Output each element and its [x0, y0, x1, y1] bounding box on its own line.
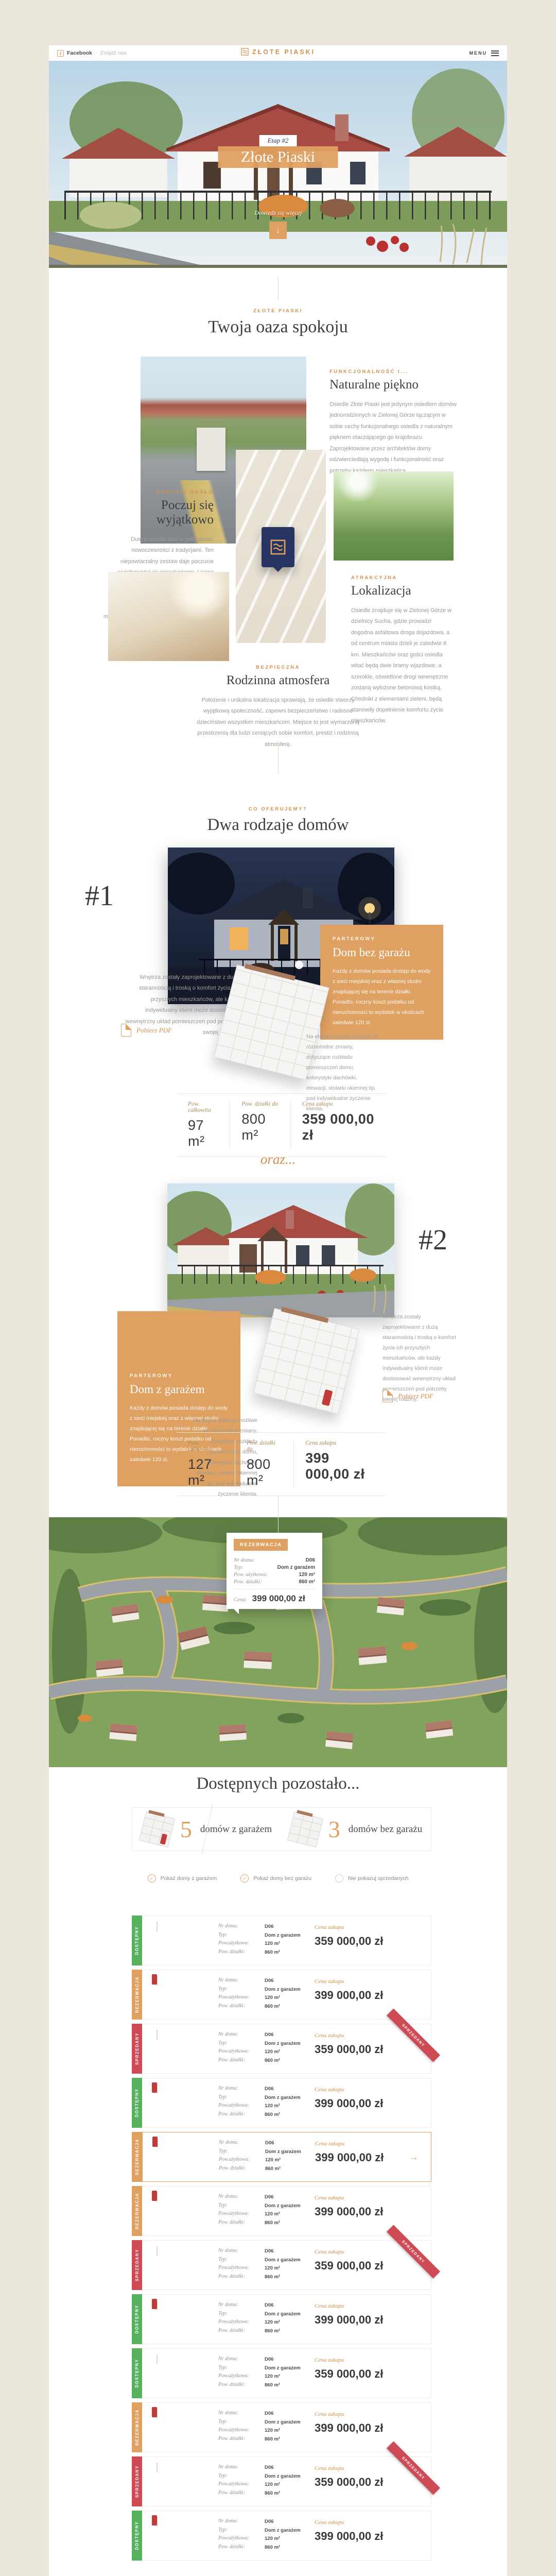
status-bar: REZERWACJA: [132, 2132, 142, 2182]
facebook-label: Facebook: [67, 50, 92, 56]
listing-row[interactable]: DOSTĘPNY Nr domu:D06 Typ:Dom z garażem P…: [132, 2511, 431, 2561]
stat-value: 127 m²: [188, 1456, 223, 1488]
hero-scroll-button[interactable]: ↓: [269, 222, 287, 239]
tooltip-price-label: Cena:: [234, 1597, 247, 1603]
intro-eyebrow: ZŁOTE PIASKI: [49, 308, 507, 314]
house2-day-photo: [167, 1183, 394, 1317]
logo[interactable]: ZŁOTE PIASKI: [241, 48, 315, 56]
feature-title: Rodzinna atmosfera: [196, 673, 360, 688]
feature-eyebrow: ATRAKCYJNA: [351, 575, 454, 581]
listing-row[interactable]: REZERWACJA Nr domu:D06 Typ:Dom z garażem…: [132, 1970, 431, 2020]
stat-value: 97 m²: [188, 1117, 218, 1149]
floorplan-thumb: [157, 2354, 158, 2364]
status-bar: DOSTĘPNY: [132, 1916, 142, 1965]
house-card-eyebrow: PARTEROWY: [333, 936, 431, 942]
pdf-icon: [121, 1024, 131, 1037]
availability-counters: 5 domów z garażem 3 domów bez garażu: [132, 1807, 431, 1851]
floorplan-thumb: [157, 2084, 158, 2094]
floorplan-icon: [287, 1811, 323, 1847]
divider-line: [278, 277, 279, 300]
counter-garage: 5 domów z garażem: [132, 1808, 282, 1851]
row-fields: Nr domu:D06 Typ:Dom z garażem Pow.użytko…: [218, 2194, 301, 2227]
row-fields: Nr domu:D06 Typ:Dom z garażem Pow.użytko…: [218, 2410, 301, 2444]
tooltip-price: 399 000,00 zł: [252, 1594, 305, 1604]
price-value: 399 000,00 zł: [315, 2421, 383, 2435]
houses-listing: DOSTĘPNY Nr domu:D06 Typ:Dom z garażem P…: [49, 1916, 507, 2568]
stat-label: Pow. działki do: [247, 1440, 282, 1452]
listing-row[interactable]: REZERWACJA Nr domu:D06 Typ:Dom z garażem…: [132, 2186, 431, 2236]
listing-row[interactable]: SPRZEDANY Nr domu:D06 Typ:Dom z garażem …: [132, 2240, 431, 2290]
price-value: 359 000,00 zł: [315, 1935, 383, 1948]
price-value: 399 000,00 zł: [315, 2530, 383, 2543]
floorplan-thumb: [157, 1922, 158, 1931]
tooltip-value: D06: [306, 1557, 315, 1563]
price-label: Cena zakupu: [315, 2519, 383, 2526]
map-marker[interactable]: [262, 527, 294, 567]
availability-section: Dostępnych pozostało... 5 domów z garaże…: [49, 1767, 507, 1916]
tooltip-value: 120 m²: [299, 1572, 315, 1578]
status-bar: SPRZEDANY: [132, 2456, 142, 2506]
pdf-label: Pobierz PDF: [136, 1026, 172, 1035]
feature-title: Poczuj się wyjątkowo: [103, 498, 214, 527]
price-value: 399 000,00 zł: [315, 2205, 383, 2218]
floorplan-thumb: [157, 2246, 158, 2256]
stat-label: Pow. całkowita: [188, 1101, 218, 1113]
facebook-hint: Znajdź nas: [100, 50, 127, 56]
listing-row[interactable]: REZERWACJA Nr domu:D06 Typ:Dom z garażem…: [132, 2402, 431, 2452]
stat-value: 800 m²: [247, 1456, 282, 1488]
row-arrow-icon[interactable]: →: [409, 2152, 419, 2163]
tooltip-status-badge: REZERWACJA: [234, 1539, 288, 1551]
divider-line: [278, 741, 279, 774]
listing-filters: ✓Pokaż domy z garażem ✓Pokaż domy bez ga…: [49, 1874, 507, 1883]
house2-floorplan: [253, 1308, 359, 1414]
house1-pdf-link[interactable]: Pobierz PDF: [121, 1024, 172, 1037]
row-fields: Nr domu:D06 Typ:Dom z garażem Pow.użytko…: [218, 1977, 301, 2011]
location-map: [236, 450, 326, 643]
menu-label: MENU: [470, 50, 488, 56]
status-bar: SPRZEDANY: [132, 2240, 142, 2290]
price-label: Cena zakupu: [315, 1978, 383, 1985]
pdf-label: Pobierz PDF: [398, 1392, 433, 1400]
status-bar: REZERWACJA: [132, 1970, 142, 2020]
menu-button[interactable]: MENU: [470, 49, 499, 57]
house-number: #2: [419, 1224, 447, 1257]
price-value: 359 000,00 zł: [315, 2043, 383, 2056]
offer-eyebrow: CO OFERUJEMY?: [49, 806, 507, 812]
listing-row[interactable]: DOSTĘPNY Nr domu:D06 Typ:Dom z garażem P…: [132, 2078, 431, 2128]
feature-text: Osiedle Złote Piaski jest jedynym osiedl…: [329, 399, 458, 477]
checkbox-checked-icon: ✓: [148, 1874, 156, 1883]
row-fields: Nr domu:D06 Typ:Dom z garażem Pow.użytko…: [218, 1923, 301, 1957]
counter-label: domów z garażem: [200, 1824, 272, 1835]
price-value: 399 000,00 zł: [315, 2151, 384, 2164]
row-fields: Nr domu:D06 Typ:Dom z garażem Pow.użytko…: [218, 2302, 301, 2335]
logo-icon: [270, 539, 286, 555]
price-value: 359 000,00 zł: [315, 2367, 383, 2381]
feature-eyebrow: FUNKCJONALNOŚĆ I...: [329, 369, 458, 375]
row-fields: Nr domu:D06 Typ:Dom z garażem Pow.użytko…: [218, 2518, 301, 2552]
stat-price: 359 000,00 zł: [302, 1111, 375, 1143]
price-value: 359 000,00 zł: [315, 2476, 383, 2489]
price-label: Cena zakupu: [315, 2032, 383, 2039]
filter-show-garage[interactable]: ✓Pokaż domy z garażem: [148, 1874, 217, 1883]
house2-stats: Pow. całkowita127 m² Pow. działki do800 …: [177, 1432, 386, 1496]
floorplan-thumb: [157, 2517, 158, 2527]
feature-title: Naturalne piękno: [329, 378, 458, 392]
listing-row[interactable]: DOSTĘPNY Nr domu:D06 Typ:Dom z garażem P…: [132, 2294, 431, 2344]
floorplan-thumb: [157, 2300, 158, 2310]
price-label: Cena zakupu: [315, 2195, 383, 2201]
house-number: #1: [85, 879, 114, 912]
floorplan-thumb: [157, 2030, 158, 2040]
hero-section: Etap #2 Złote Piaski Dowiedz się więcej …: [49, 61, 507, 268]
row-fields: Nr domu:D06 Typ:Dom z garażem Pow.użytko…: [218, 2086, 301, 2119]
masterplan-section: REZERWACJA Nr domu:D06 Typ:Dom z garażem…: [49, 1517, 507, 1767]
hero-stage-badge: Etap #2: [259, 135, 297, 146]
feature-family-atmosphere: BEZPIECZNA Rodzinna atmosfera Położenie …: [196, 665, 360, 750]
separator-dot: ·: [95, 50, 97, 56]
house-card-title: Dom z garażem: [130, 1383, 228, 1396]
offer-section: CO OFERUJEMY? Dwa rodzaje domów #1: [49, 802, 507, 1517]
tooltip-label: Pow. działki:: [234, 1579, 262, 1585]
floorplan-thumb: [157, 2463, 158, 2472]
counter-value: 5: [180, 1816, 192, 1843]
filter-label: Pokaż domy bez garażu: [253, 1875, 311, 1882]
stat-label: Cena zakupu: [302, 1101, 375, 1107]
floorplan-thumb: [157, 2138, 158, 2148]
intro-title: Twoja oaza spokoju: [49, 317, 507, 337]
page-column: f Facebook · Znajdź nas ZŁOTE PIASKI MEN…: [49, 45, 507, 2576]
tooltip-value: 860 m²: [299, 1579, 315, 1585]
logo-icon: [241, 48, 249, 56]
tooltip-label: Pow. użytkowa:: [234, 1572, 268, 1578]
stat-price: 399 000,00 zł: [305, 1450, 375, 1482]
listing-row[interactable]: DOSTĘPNY Nr domu:D06 Typ:Dom z garażem P…: [132, 2348, 431, 2398]
listing-row[interactable]: DOSTĘPNY Nr domu:D06 Typ:Dom z garażem P…: [132, 1916, 431, 1965]
status-bar: REZERWACJA: [132, 2402, 142, 2452]
price-value: 399 000,00 zł: [315, 2313, 383, 2327]
house1-card: PARTEROWY Dom bez garażu Każdy z domów p…: [320, 925, 443, 1040]
feature-eyebrow: KRÓTKIE HASŁO: [103, 489, 214, 495]
oraz-separator: oraz...: [49, 1151, 507, 1167]
status-bar: DOSTĘPNY: [132, 2348, 142, 2398]
house-card-eyebrow: PARTEROWY: [130, 1373, 228, 1379]
counter-label: domów bez garażu: [349, 1824, 423, 1835]
filter-hide-sold[interactable]: ✓Nie pokazuj sprzedanych: [335, 1874, 408, 1883]
tooltip-label: Nr domu:: [234, 1557, 255, 1563]
price-label: Cena zakupu: [315, 2249, 383, 2255]
price-value: 359 000,00 zł: [315, 2259, 383, 2273]
status-bar: REZERWACJA: [132, 2186, 142, 2236]
floorplan-icon: [139, 1811, 175, 1847]
row-fields: Nr domu:D06 Typ:Dom z garażem Pow.użytko…: [218, 2356, 301, 2389]
availability-title: Dostępnych pozostało...: [49, 1774, 507, 1793]
hero-scroll-hint: Dowiedz się więcej: [49, 209, 507, 217]
filter-label: Nie pokazuj sprzedanych: [348, 1875, 408, 1882]
price-label: Cena zakupu: [315, 2357, 383, 2363]
feature-eyebrow: BEZPIECZNA: [196, 665, 360, 670]
intro-section: ZŁOTE PIASKI Twoja oaza spokoju FUNKCJON…: [49, 268, 507, 802]
price-label: Cena zakupu: [315, 2303, 383, 2309]
status-bar: SPRZEDANY: [132, 2024, 142, 2074]
stat-label: Pow. działki do: [241, 1101, 279, 1107]
listing-row[interactable]: SPRZEDANY Nr domu:D06 Typ:Dom z garażem …: [132, 2456, 431, 2506]
floorplan-thumb: [157, 1976, 158, 1986]
stat-label: Pow. całkowita: [188, 1440, 223, 1452]
floorplan-carousel: ← →: [49, 2568, 507, 2576]
price-label: Cena zakupu: [315, 2141, 384, 2147]
stat-value: 800 m²: [241, 1111, 279, 1143]
stat-label: Cena zakupu: [305, 1440, 375, 1446]
price-label: Cena zakupu: [315, 2465, 383, 2471]
brand-name: ZŁOTE PIASKI: [252, 48, 315, 56]
feature-natural-beauty: FUNKCJONALNOŚĆ I... Naturalne piękno Osi…: [329, 369, 458, 477]
tooltip-label: Typ:: [234, 1565, 243, 1570]
divider-line: [278, 1497, 279, 1517]
row-fields: Nr domu:D06 Typ:Dom z garażem Pow.użytko…: [218, 2248, 301, 2281]
status-bar: DOSTĘPNY: [132, 2511, 142, 2561]
floorplan-thumb: [157, 2192, 158, 2202]
floorplan-thumb: [157, 2409, 158, 2418]
offer-title: Dwa rodzaje domów: [49, 816, 507, 835]
family-dinner-photo: [108, 572, 229, 661]
plot-tooltip[interactable]: REZERWACJA Nr domu:D06 Typ:Dom z garażem…: [227, 1533, 322, 1609]
tooltip-value: Dom z garażem: [277, 1565, 315, 1570]
price-label: Cena zakupu: [315, 2411, 383, 2417]
row-fields: Nr domu:D06 Typ:Dom z garażem Pow.użytko…: [219, 2140, 301, 2173]
feature-location: ATRAKCYJNA Lokalizacja Osiedle znajduje …: [351, 575, 454, 727]
filter-label: Pokaż domy z garażem: [161, 1875, 217, 1882]
price-value: 399 000,00 zł: [315, 1989, 383, 2002]
feature-text: Osiedle znajduje się w Zielonej Górze w …: [351, 605, 454, 727]
checkbox-unchecked-icon: ✓: [335, 1874, 343, 1883]
listing-row-selected[interactable]: REZERWACJA Nr domu:D06 Typ:Dom z garażem…: [132, 2132, 431, 2182]
checkbox-checked-icon: ✓: [240, 1874, 249, 1883]
top-bar: f Facebook · Znajdź nas ZŁOTE PIASKI MEN…: [49, 45, 507, 61]
price-label: Cena zakupu: [315, 2087, 383, 2093]
house-card-title: Dom bez garażu: [333, 946, 431, 959]
status-bar: DOSTĘPNY: [132, 2294, 142, 2344]
price-label: Cena zakupu: [315, 1924, 383, 1930]
row-fields: Nr domu:D06 Typ:Dom z garażem Pow.użytko…: [218, 2031, 301, 2065]
house1-stats: Pow. całkowita97 m² Pow. działki do800 m…: [177, 1093, 386, 1157]
feature-title: Lokalizacja: [351, 584, 454, 598]
counter-value: 3: [328, 1816, 340, 1843]
price-value: 399 000,00 zł: [315, 2097, 383, 2110]
house2-pdf-link[interactable]: Pobierz PDF: [383, 1389, 433, 1402]
filter-show-no-garage[interactable]: ✓Pokaż domy bez garażu: [240, 1874, 311, 1883]
hamburger-icon: [491, 49, 499, 57]
family-park-photo: [334, 471, 454, 561]
listing-row[interactable]: SPRZEDANY Nr domu:D06 Typ:Dom z garażem …: [132, 2024, 431, 2074]
row-fields: Nr domu:D06 Typ:Dom z garażem Pow.użytko…: [218, 2464, 301, 2498]
house-card-text: Każdy z domów posiada dostęp do wody z s…: [333, 967, 431, 1028]
pdf-icon: [383, 1389, 393, 1402]
counter-no-garage: 3 domów bez garażu: [282, 1808, 431, 1851]
facebook-icon: f: [57, 50, 64, 57]
status-bar: DOSTĘPNY: [132, 2078, 142, 2128]
facebook-link[interactable]: f Facebook · Znajdź nas: [57, 50, 127, 57]
hero-name-badge: Złote Piaski: [218, 146, 338, 168]
